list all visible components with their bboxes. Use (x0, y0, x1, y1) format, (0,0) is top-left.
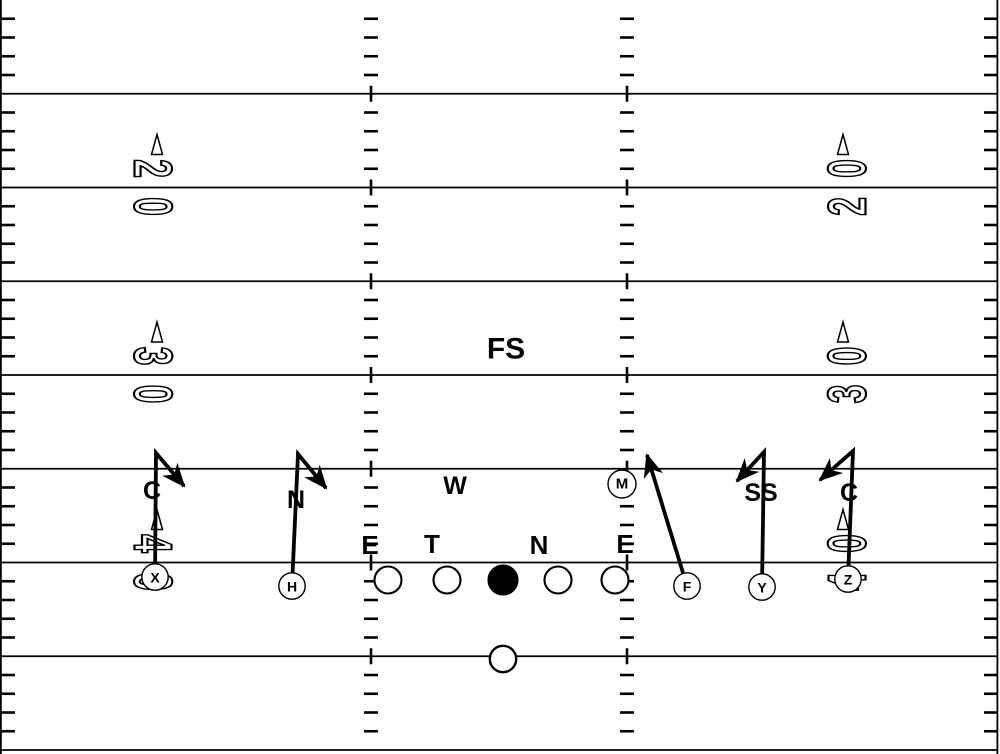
route-x[interactable] (155, 453, 184, 577)
yard-number-20-left: 20 (122, 135, 183, 216)
route-z[interactable] (820, 451, 853, 579)
field-direction-triangle-icon (838, 510, 849, 530)
player-circle[interactable] (490, 646, 516, 672)
yard-number-digit: 0 (122, 385, 183, 404)
route-h[interactable] (292, 454, 326, 586)
yard-number-digit: 2 (122, 159, 183, 178)
offensive-lineman[interactable] (434, 567, 461, 594)
player-f[interactable]: F (674, 573, 700, 599)
defender-label: C (840, 479, 858, 507)
field-direction-triangle-icon (152, 322, 163, 342)
yard-number-30-left: 30 (122, 322, 183, 403)
center-lineman[interactable] (489, 566, 518, 595)
player-qb[interactable] (490, 646, 516, 672)
yard-number-20-right: 02 (816, 135, 877, 216)
yard-number-digit: 3 (122, 347, 183, 366)
defense-labels: FSCNWMSSCETNE (143, 333, 858, 561)
football-field-diagram: 200230034004 FSCNWMSSCETNE XHFYZ (0, 0, 1000, 754)
route-f[interactable] (647, 455, 687, 586)
defender-label: W (443, 472, 467, 500)
player-label: X (150, 570, 160, 586)
player-label: H (287, 579, 297, 595)
offensive-lineman[interactable] (602, 567, 629, 594)
defender-label: T (424, 529, 440, 559)
defender-t[interactable]: T (424, 529, 440, 559)
yard-number-digit: 0 (122, 197, 183, 216)
yard-number-digit: 0 (816, 534, 877, 553)
defender-label: M (616, 476, 629, 493)
field-borders (1, 0, 998, 754)
route-y[interactable] (737, 452, 764, 587)
player-h[interactable]: H (279, 573, 305, 599)
player-label: Y (757, 580, 767, 596)
field-direction-triangle-icon (838, 135, 849, 155)
yard-number-digit: 3 (816, 385, 877, 404)
defender-w[interactable]: W (443, 472, 467, 500)
yard-number-digit: 4 (122, 534, 183, 553)
defender-label: FS (487, 333, 525, 366)
offensive-lineman[interactable] (545, 567, 572, 594)
defender-label: SS (744, 479, 777, 507)
defender-e[interactable]: E (361, 530, 378, 560)
player-label: Z (844, 572, 853, 588)
defender-label: E (361, 530, 378, 560)
defender-label: C (143, 477, 161, 505)
defender-c[interactable]: C (143, 477, 161, 505)
defender-e[interactable]: E (616, 529, 633, 559)
defender-ss[interactable]: SS (744, 479, 777, 507)
defender-label: E (616, 529, 633, 559)
player-x[interactable]: X (142, 564, 168, 590)
yard-number-30-right: 03 (816, 322, 877, 403)
field-direction-triangle-icon (838, 322, 849, 342)
player-label: F (683, 579, 692, 595)
field-direction-triangle-icon (152, 135, 163, 155)
defender-m[interactable]: M (608, 470, 636, 498)
defender-n[interactable]: N (530, 530, 549, 560)
play-diagram-canvas: 200230034004 FSCNWMSSCETNE XHFYZ (0, 0, 1000, 754)
player-y[interactable]: Y (749, 574, 775, 600)
yard-number-digit: 0 (816, 159, 877, 178)
defender-label: N (530, 530, 549, 560)
yard-number-digit: 2 (816, 197, 877, 216)
defender-c[interactable]: C (840, 479, 858, 507)
defender-fs[interactable]: FS (487, 333, 525, 366)
yard-number-digit: 0 (816, 347, 877, 366)
player-z[interactable]: Z (835, 566, 861, 592)
offensive-lineman[interactable] (375, 567, 402, 594)
